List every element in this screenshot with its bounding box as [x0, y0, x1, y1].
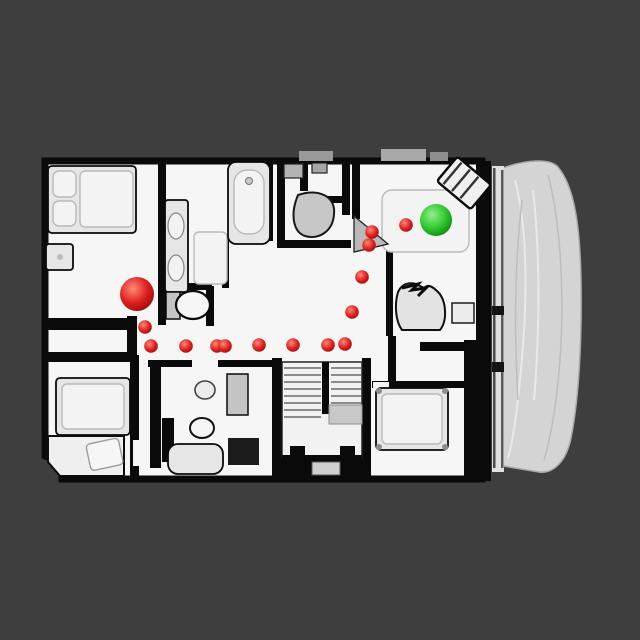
goal-marker	[420, 204, 452, 236]
path-waypoint-dot	[179, 339, 193, 353]
mattress	[62, 384, 124, 429]
topdown-scene-viewport	[0, 0, 640, 640]
entry-step	[312, 462, 340, 475]
path-waypoint-dot	[218, 339, 232, 353]
path-waypoint-dot	[252, 338, 266, 352]
side-table	[452, 303, 474, 323]
path-waypoint-dot	[345, 305, 359, 319]
mattress	[382, 394, 442, 444]
toilet-bowl	[176, 291, 210, 319]
terrain-slab	[492, 161, 581, 472]
cabinet	[227, 374, 248, 415]
path-waypoint-dot	[144, 339, 158, 353]
staircase	[282, 362, 362, 479]
path-waypoint-dot	[365, 225, 379, 239]
sink	[195, 381, 215, 399]
roof-bump	[381, 149, 426, 161]
closet-object	[294, 192, 335, 237]
cushion	[86, 438, 124, 471]
path-waypoint-dot	[138, 320, 152, 334]
path-waypoint-dot	[355, 270, 369, 284]
bathtub	[168, 444, 223, 474]
shelf-item	[312, 163, 327, 173]
sink	[168, 255, 184, 281]
roof-bump	[430, 152, 448, 161]
dark-vanity	[228, 438, 259, 465]
bath-rug	[194, 232, 227, 284]
mattress	[80, 171, 133, 227]
pillow	[53, 201, 76, 226]
path-waypoint-dot	[362, 238, 376, 252]
path-waypoint-dot	[321, 338, 335, 352]
bedroom-bottomleft	[48, 378, 130, 476]
toilet-bowl	[190, 418, 214, 438]
stair-landing	[329, 405, 362, 424]
roof-bump	[299, 151, 333, 161]
path-waypoint-dot	[399, 218, 413, 232]
path-waypoint-dot	[286, 338, 300, 352]
bedroom-bottomright	[376, 388, 448, 450]
floorplan-mesh	[45, 149, 581, 481]
pillow	[53, 171, 76, 197]
shelf-item	[284, 164, 303, 178]
sink	[168, 213, 184, 239]
stair-rail	[322, 362, 329, 414]
path-waypoint-dot	[338, 337, 352, 351]
start-marker	[120, 277, 154, 311]
